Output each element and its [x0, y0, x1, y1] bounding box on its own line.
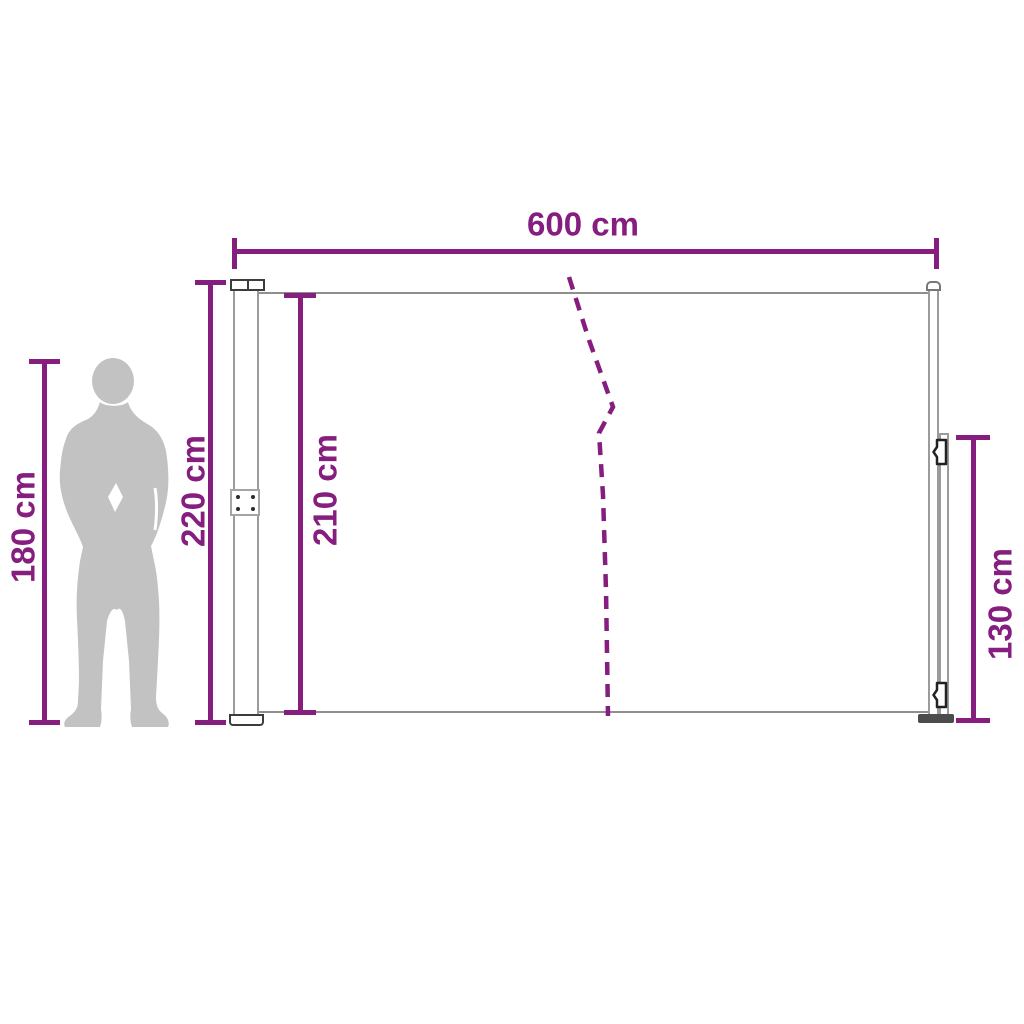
fabric-fold-dashed-line	[0, 0, 1024, 1024]
fabric-height-label: 210 cm	[309, 434, 342, 546]
pull-bar-height-top-tick	[956, 435, 990, 440]
person-head	[92, 358, 134, 404]
pull-bar-height-bottom-tick	[956, 718, 990, 723]
dimension-diagram: 600 cm 180 cm 220 cm 210 cm 130 cm	[0, 0, 1024, 1024]
bracket-screw	[236, 507, 240, 511]
bracket-screw	[236, 495, 240, 499]
person-body	[60, 402, 169, 727]
person-silhouette	[0, 0, 1024, 1024]
fabric-height-top-tick	[284, 293, 316, 298]
pull-bar-height-label: 130 cm	[984, 548, 1017, 660]
width-dimension-right-tick	[934, 238, 939, 269]
pole-foot	[918, 714, 954, 723]
pull-bar	[939, 433, 949, 716]
person-height-label: 180 cm	[7, 471, 40, 583]
fabric-height-bottom-tick	[284, 710, 316, 715]
width-dimension-left-tick	[232, 238, 237, 269]
cassette-height-top-tick	[195, 280, 226, 285]
pole-top-cap	[926, 281, 941, 291]
bracket-screw	[251, 507, 255, 511]
pull-bar-top-clip	[932, 438, 950, 466]
width-dimension-label: 600 cm	[527, 208, 639, 241]
pull-bar-bottom-clip	[932, 681, 950, 709]
fabric-height-line	[298, 294, 303, 715]
pull-bar-height-line	[971, 436, 976, 723]
cassette-height-bottom-tick	[195, 720, 226, 725]
fabric-bottom-edge	[259, 711, 929, 713]
support-pole	[928, 288, 939, 716]
cassette-bottom-cap	[229, 714, 264, 726]
person-height-bottom-tick	[29, 720, 60, 725]
width-dimension-line	[234, 249, 937, 254]
cassette-height-label: 220 cm	[177, 435, 210, 547]
cassette-top-cap-divider	[247, 280, 249, 290]
bracket-screw	[251, 495, 255, 499]
wall-bracket	[230, 489, 260, 516]
fabric-top-edge	[259, 292, 929, 294]
person-height-line	[42, 361, 47, 725]
person-height-top-tick	[29, 359, 60, 364]
